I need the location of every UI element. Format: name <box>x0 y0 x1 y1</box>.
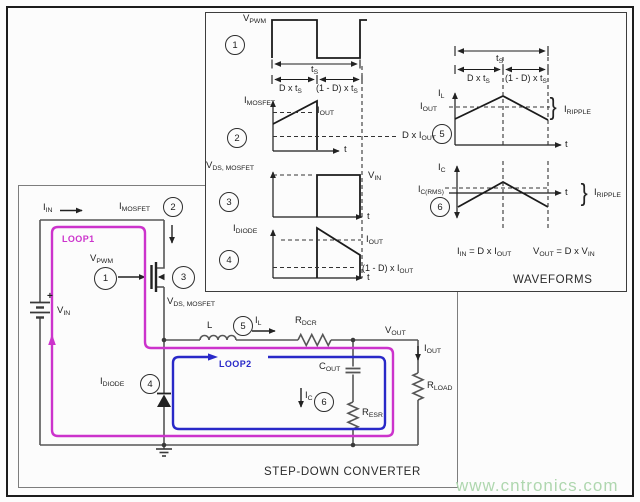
label-ts-wf1: tS <box>311 64 318 78</box>
marker-3-waveform: 3 <box>219 192 239 212</box>
label-il-circuit: IL <box>255 315 261 329</box>
label-vin-wf3: VIN <box>368 170 381 184</box>
converter-panel-title: STEP-DOWN CONVERTER <box>264 466 421 478</box>
watermark-text: www.cntronics.com <box>456 476 618 496</box>
label-iout-wf2: IOUT <box>317 105 334 119</box>
figure-root: VPWM 1 tS D x tS (1 - D) x tS IMOSFET 2 … <box>0 0 640 502</box>
label-vds-circuit: VDS, MOSFET <box>167 296 215 310</box>
label-ic-rms: IC(RMS) <box>418 184 444 198</box>
label-iin-circuit: IIN <box>43 202 52 216</box>
label-iripple-wf5: IRIPPLE <box>564 104 591 118</box>
marker-2-waveform: 2 <box>227 128 247 148</box>
marker-2-circuit: 2 <box>163 197 183 217</box>
label-t-wf3: t <box>367 211 370 222</box>
marker-5-waveform: 5 <box>432 124 452 144</box>
label-d-ts-wf5: D x tS <box>467 73 490 87</box>
label-t-wf4: t <box>367 272 370 283</box>
loop1-label: LOOP1 <box>62 234 95 244</box>
label-t-wf2: t <box>344 144 347 155</box>
label-idiode-circuit: IDIODE <box>100 376 124 390</box>
marker-6-waveform: 6 <box>430 197 450 217</box>
label-idiode-waveform: IDIODE <box>233 223 257 237</box>
marker-3-circuit: 3 <box>172 266 195 289</box>
label-ts-wf5: tS <box>496 53 503 67</box>
label-omd-ts-wf5: (1 - D) x tS <box>505 73 547 87</box>
marker-1-waveform: 1 <box>225 35 245 55</box>
label-iout-wf5: IOUT <box>420 101 437 115</box>
label-vin-circuit: VIN <box>57 305 70 319</box>
waveforms-panel-title: WAVEFORMS <box>513 274 593 286</box>
label-ic-waveform: IC <box>438 162 446 176</box>
loop2-label: LOOP2 <box>219 359 252 369</box>
label-vout-circuit: VOUT <box>385 325 406 339</box>
label-imosfet-circuit: IMOSFET <box>119 201 150 215</box>
label-iout-circuit: IOUT <box>424 343 441 357</box>
label-vpwm-circuit: VPWM <box>90 253 113 267</box>
ripple-brace-wf5: } <box>550 93 557 121</box>
label-omd-ts-wf1: (1 - D) x tS <box>316 83 358 97</box>
battery-plus-sign: + <box>47 291 53 302</box>
marker-1-circuit: 1 <box>94 267 117 290</box>
marker-6-circuit: 6 <box>314 392 334 412</box>
ripple-brace-wf6: } <box>581 179 588 207</box>
label-iout-wf4: IOUT <box>366 234 383 248</box>
label-d-ts-wf1: D x tS <box>279 83 302 97</box>
marker-4-circuit: 4 <box>140 374 160 394</box>
label-t-wf6: t <box>565 187 568 198</box>
label-ic-circuit: IC <box>305 390 313 404</box>
equation-vout: VOUT = D x VIN <box>533 246 595 260</box>
label-t-wf5: t <box>565 139 568 150</box>
label-rdcr: RDCR <box>295 315 317 329</box>
label-imosfet-waveform: IMOSFET <box>244 95 275 109</box>
equation-iin: IIN = D x IOUT <box>457 246 511 260</box>
label-resr: RESR <box>362 407 383 421</box>
label-iripple-wf6: IRIPPLE <box>594 187 621 201</box>
marker-4-waveform: 4 <box>219 250 239 270</box>
label-vds-waveform: VDS, MOSFET <box>206 160 254 174</box>
label-cout: COUT <box>319 361 340 375</box>
marker-5-circuit: 5 <box>233 316 253 336</box>
label-rload: RLOAD <box>427 380 452 394</box>
label-inductor: L <box>207 320 212 331</box>
label-il-waveform: IL <box>438 88 444 102</box>
label-d-iout-wf2: D x IOUT <box>402 130 436 144</box>
label-vpwm-waveform: VPWM <box>243 13 266 27</box>
